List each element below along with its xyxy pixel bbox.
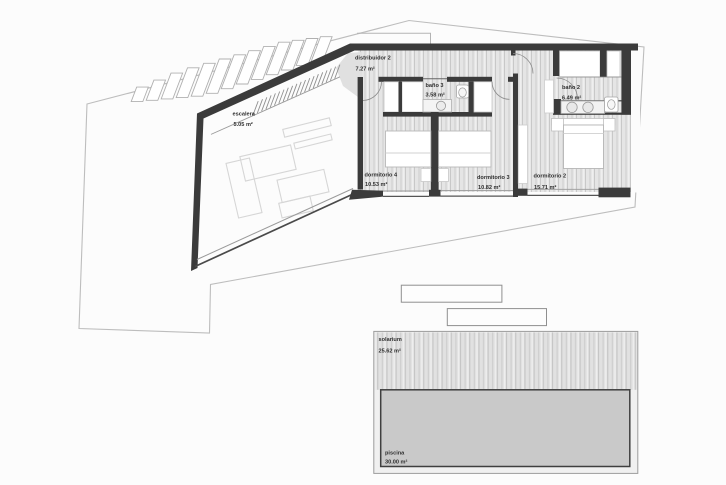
svg-text:3.58 m²: 3.58 m² — [426, 91, 445, 98]
svg-text:10.53 m²: 10.53 m² — [365, 181, 388, 188]
svg-text:baño 3: baño 3 — [426, 83, 444, 89]
svg-text:30.00 m²: 30.00 m² — [385, 459, 408, 466]
svg-text:10.82 m²: 10.82 m² — [478, 184, 501, 191]
svg-text:dormitorio 4: dormitorio 4 — [365, 173, 399, 179]
svg-text:25.62 m²: 25.62 m² — [379, 348, 402, 355]
svg-text:6.49 m²: 6.49 m² — [562, 95, 581, 102]
svg-text:5.05 m²: 5.05 m² — [234, 121, 253, 128]
svg-text:distribuidor 2: distribuidor 2 — [355, 56, 391, 62]
svg-text:dormitorio 3: dormitorio 3 — [477, 175, 510, 181]
svg-text:solarium: solarium — [379, 337, 402, 343]
svg-text:baño 2: baño 2 — [562, 85, 580, 91]
svg-text:7.27 m²: 7.27 m² — [356, 66, 375, 73]
svg-text:piscina: piscina — [385, 451, 405, 457]
svg-text:escalera: escalera — [233, 112, 256, 118]
svg-text:dormitorio 2: dormitorio 2 — [534, 174, 567, 180]
svg-text:15.71 m²: 15.71 m² — [534, 184, 557, 191]
